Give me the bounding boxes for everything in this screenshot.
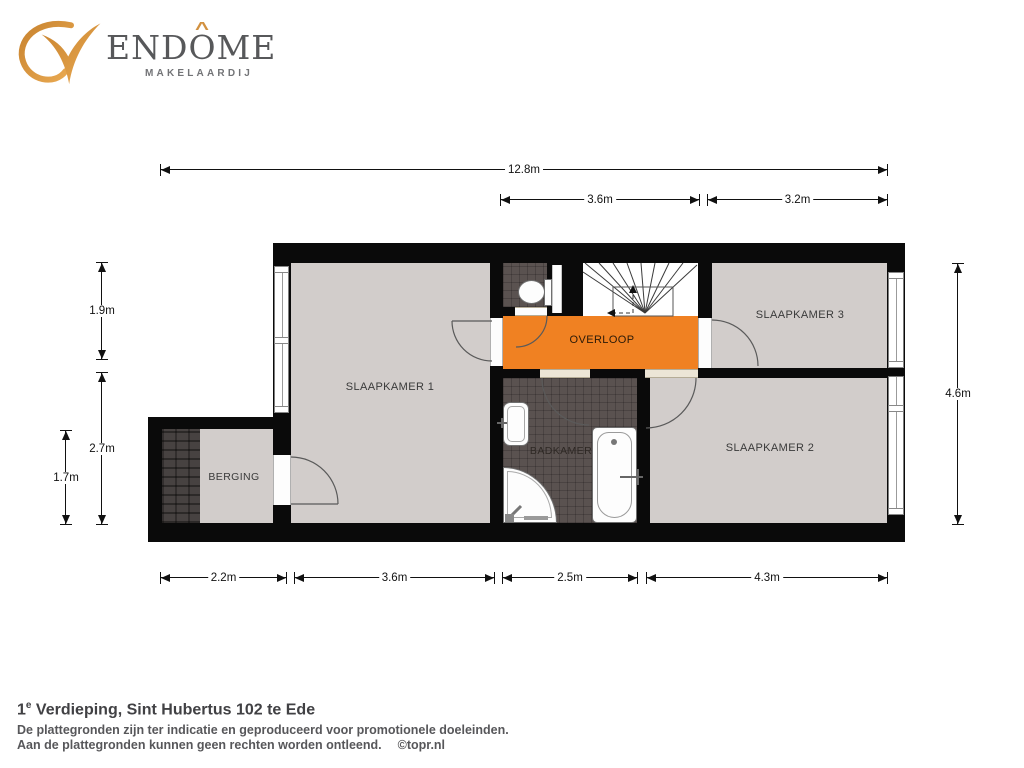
door-arc-slaapkamer3 <box>712 320 758 366</box>
dim-slaapkamer2-width: 4.3m <box>646 572 888 584</box>
bathtub-faucet-icon <box>620 469 643 485</box>
dim-total-width: 12.8m <box>160 164 888 176</box>
dim-left-lower: 2.7m <box>96 372 108 525</box>
dim-overloop-width: 3.6m <box>500 194 700 206</box>
label-slaapkamer2: SLAAPKAMER 2 <box>726 442 815 454</box>
dim-slaapkamer1-width: 3.6m <box>294 572 495 584</box>
label-slaapkamer3: SLAAPKAMER 3 <box>756 309 845 321</box>
label-slaapkamer1: SLAAPKAMER 1 <box>346 381 435 393</box>
dim-slaapkamer3-width: 3.2m <box>707 194 888 206</box>
dim-badkamer-width: 2.5m <box>502 572 638 584</box>
stair-treads <box>583 263 697 313</box>
floorplan-page: ENDO^ME MAKELAARDIJ <box>0 0 1024 768</box>
label-badkamer: BADKAMER <box>530 445 592 457</box>
plan-title: 1e Verdieping, Sint Hubertus 102 te Ede <box>17 700 315 719</box>
credit-topr: ©topr.nl <box>398 738 445 752</box>
dim-berging-width: 2.2m <box>160 572 287 584</box>
dim-berging-height: 1.7m <box>60 430 72 525</box>
shower-head-icon <box>505 506 548 522</box>
door-arc-berging <box>291 457 338 504</box>
label-berging: BERGING <box>208 471 259 483</box>
door-arc-slaapkamer1 <box>452 321 492 361</box>
stair-walkline <box>607 285 637 317</box>
plan-line-overlay <box>0 0 1024 768</box>
dim-left-upper: 1.9m <box>96 262 108 360</box>
door-arc-slaapkamer2 <box>646 378 696 428</box>
label-overloop: OVERLOOP <box>570 334 635 346</box>
door-arc-badkamer <box>542 378 589 425</box>
sink-faucet-icon <box>497 418 507 428</box>
disclaimer-line2: Aan de plattegronden kunnen geen rechten… <box>17 738 445 752</box>
dim-right-height: 4.6m <box>952 263 964 525</box>
bathtub-drain-icon <box>611 439 617 445</box>
door-arc-toilet <box>516 316 547 347</box>
disclaimer-line1: De plattegronden zijn ter indicatie en g… <box>17 723 509 737</box>
